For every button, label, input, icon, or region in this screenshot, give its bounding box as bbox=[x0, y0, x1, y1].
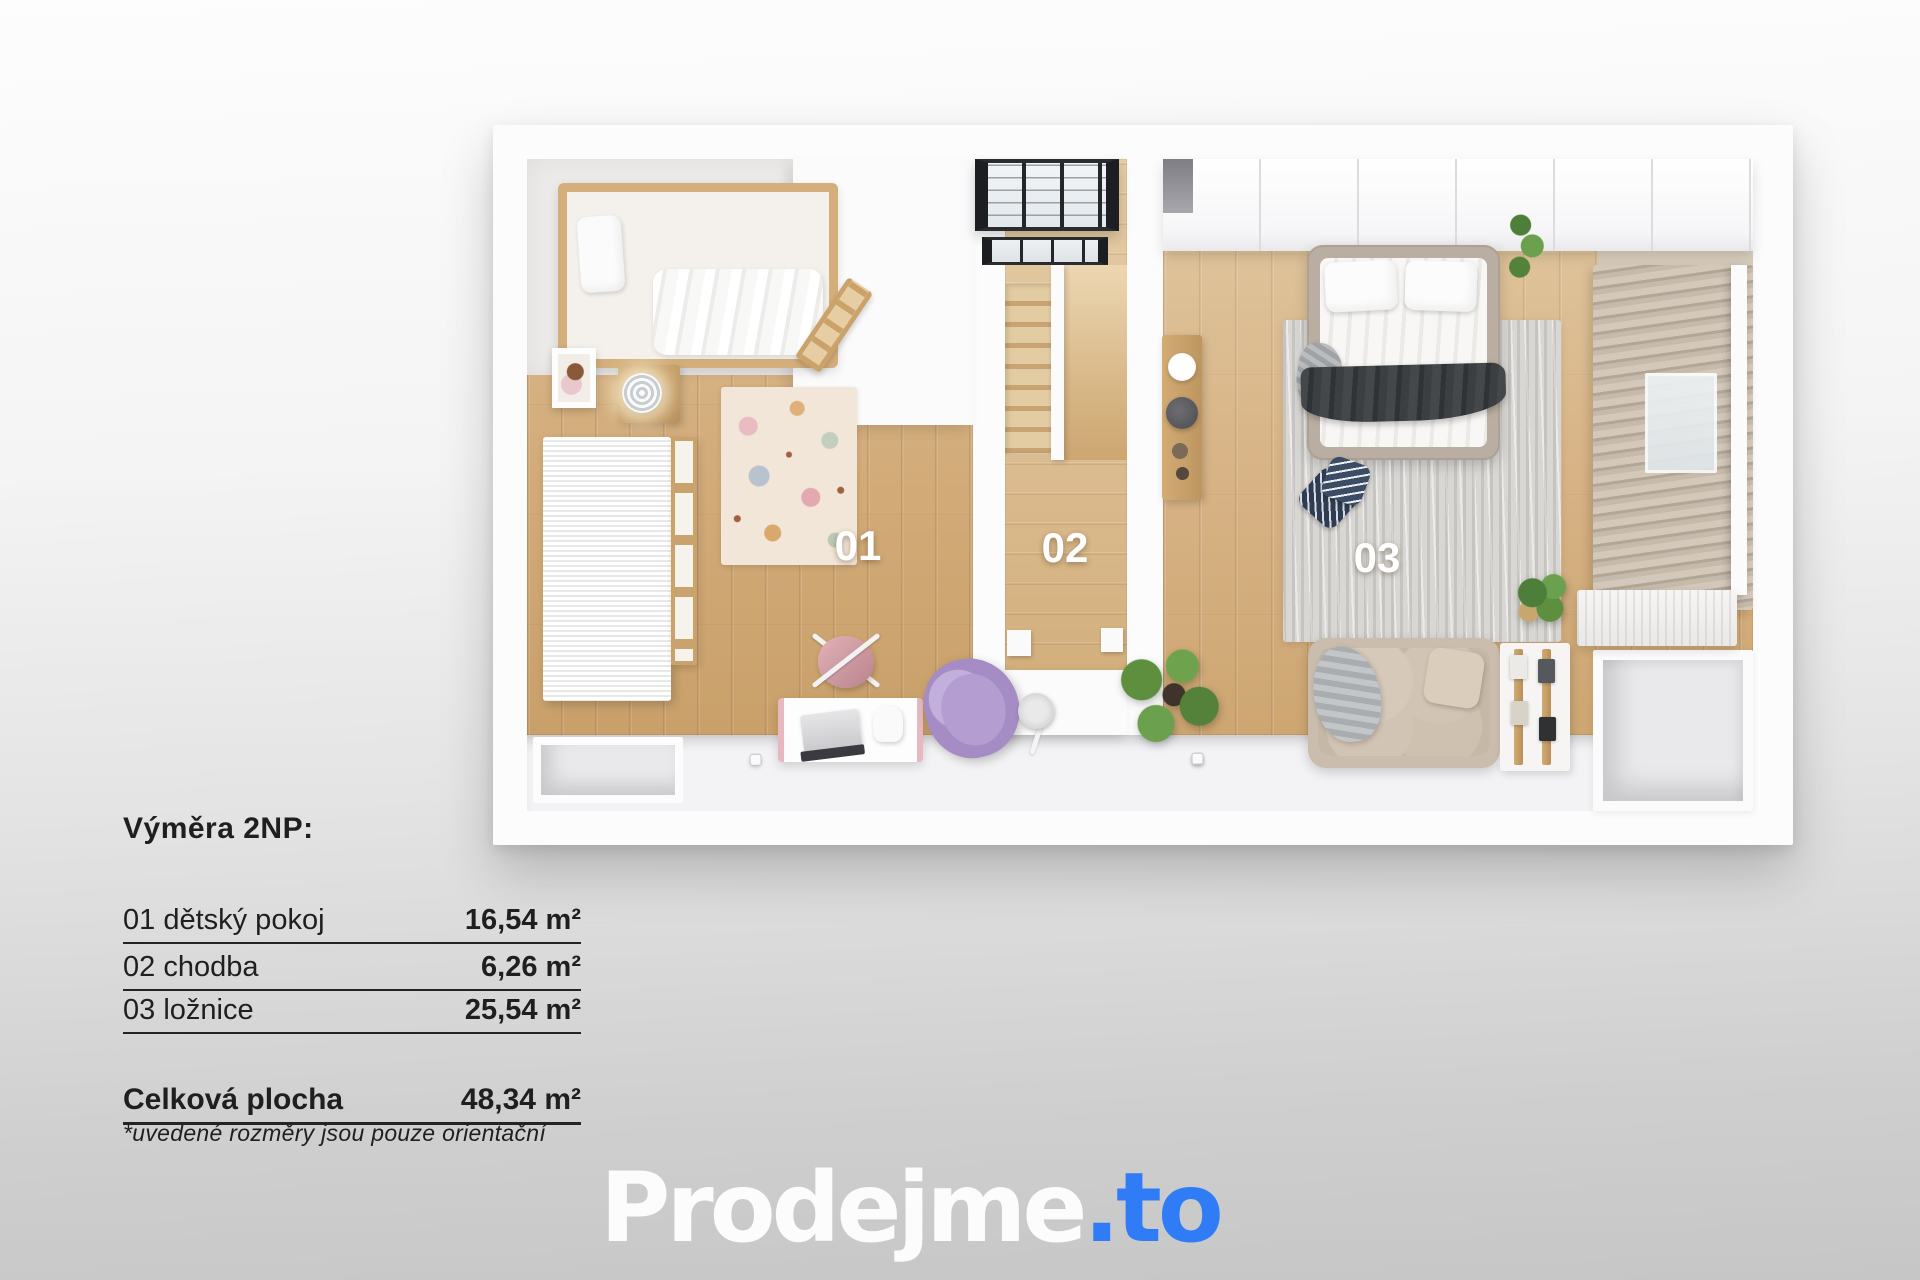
brand-tld: .to bbox=[1084, 1152, 1220, 1264]
room-label-01: 01 bbox=[813, 525, 903, 567]
stair-partition-wall bbox=[1051, 265, 1064, 460]
monstera-plant bbox=[1108, 643, 1228, 758]
book bbox=[1539, 717, 1556, 741]
dresser bbox=[543, 437, 671, 701]
room-label-02: 02 bbox=[1020, 527, 1110, 569]
floor-lamp-shade bbox=[1018, 693, 1054, 729]
floor-lamp bbox=[1018, 693, 1054, 757]
bedroom-door-opening bbox=[1163, 159, 1193, 213]
book bbox=[1511, 701, 1528, 725]
roof-void-right bbox=[1593, 650, 1753, 811]
summary-heading: Výměra 2NP: bbox=[123, 812, 314, 846]
window bbox=[1645, 373, 1717, 473]
basket-plant bbox=[1508, 568, 1578, 630]
door-panel bbox=[1731, 265, 1747, 595]
double-bed-pillow-left bbox=[1324, 259, 1399, 313]
magazine-shelf bbox=[1500, 643, 1570, 771]
knee-wall-niche bbox=[533, 737, 683, 803]
summary-row-01: 01 dětský pokoj 16,54 m² bbox=[123, 904, 581, 944]
loft-bed-pillow bbox=[576, 215, 625, 294]
room-area: 6,26 m² bbox=[481, 951, 581, 984]
room-label-03: 03 bbox=[1332, 537, 1422, 579]
desk-chair-seat bbox=[818, 636, 874, 688]
double-bed bbox=[1307, 245, 1500, 460]
wardrobe-band bbox=[1163, 159, 1753, 251]
room-area: 25,54 m² bbox=[465, 994, 581, 1027]
desk-chair bbox=[810, 630, 880, 696]
double-bed-pillow-right bbox=[1404, 260, 1478, 312]
sofa-pillow bbox=[1422, 646, 1486, 710]
roof-windows-left bbox=[750, 751, 931, 807]
summary-total-row: Celková plocha 48,34 m² bbox=[123, 1083, 581, 1125]
summary-row-03: 03 ložnice 25,54 m² bbox=[123, 994, 581, 1034]
floor-cushions bbox=[1305, 460, 1369, 530]
stair-treads bbox=[1005, 285, 1051, 455]
console-table bbox=[1162, 335, 1202, 500]
disclaimer-footnote: *uvedené rozměry jsou pouze orientační bbox=[123, 1120, 546, 1147]
book bbox=[1538, 659, 1555, 683]
summary-row-02: 02 chodba 6,26 m² bbox=[123, 951, 581, 991]
stair-glass-railing bbox=[982, 237, 1108, 265]
floorplan: 01 02 03 bbox=[493, 125, 1793, 845]
bedside-table bbox=[618, 365, 680, 423]
decor-bowl bbox=[1172, 443, 1188, 459]
room-name: 01 dětský pokoj bbox=[123, 904, 325, 937]
laptop bbox=[800, 709, 862, 754]
book bbox=[1510, 655, 1527, 679]
brand-name: Prodejme bbox=[600, 1152, 1084, 1264]
roof-window-pane bbox=[750, 755, 760, 765]
toy-shelf bbox=[671, 437, 697, 665]
monstera-leaves bbox=[1108, 643, 1228, 758]
total-label: Celková plocha bbox=[123, 1083, 343, 1117]
loft-bed-duvet bbox=[653, 269, 823, 355]
stair-skylight-grid bbox=[975, 159, 1119, 231]
decor-tray bbox=[1168, 353, 1196, 381]
room-area: 16,54 m² bbox=[465, 904, 581, 937]
loft-bed bbox=[558, 183, 838, 368]
total-area: 48,34 m² bbox=[461, 1083, 581, 1117]
stair-newel-left bbox=[1007, 630, 1031, 656]
sofa-throw bbox=[1309, 643, 1385, 745]
brand-logo: Prodejme.to bbox=[600, 1156, 1200, 1262]
roof-windows-right bbox=[1192, 748, 1465, 810]
room-name: 03 ložnice bbox=[123, 994, 254, 1027]
table-lamp bbox=[622, 373, 662, 413]
desk-toy bbox=[873, 706, 903, 742]
basket-plant-leaves bbox=[1508, 568, 1578, 630]
stair-upper-flight bbox=[1064, 265, 1127, 460]
picture-frame bbox=[552, 348, 596, 408]
decor-bowl-small bbox=[1176, 467, 1189, 480]
round-stool bbox=[1166, 397, 1198, 429]
sideboard bbox=[1577, 590, 1737, 646]
room-name: 02 chodba bbox=[123, 951, 258, 984]
